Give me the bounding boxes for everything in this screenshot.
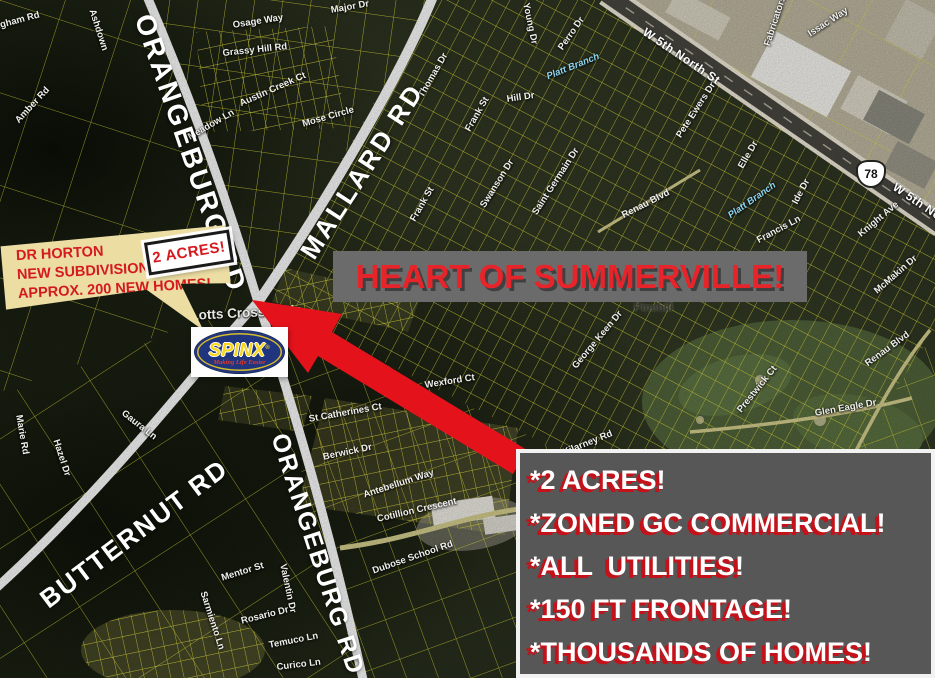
spinx-logo-name: SPINX® [209,339,270,359]
spinx-logo-card: SPINX® Making Life Easier [191,327,288,377]
feature-frontage: *150 FT FRONTAGE! [530,588,931,631]
spinx-logo-oval: SPINX® Making Life Easier [194,330,285,374]
feature-homes: *THOUSANDS OF HOMES! [530,631,931,674]
spinx-logo-tagline: Making Life Easier [213,359,265,366]
headline-banner: HEART OF SUMMERVILLE! [333,251,807,302]
flyer-map: Bingham RdOsage WayGrassy Hill RdAustin … [0,0,935,678]
feature-zoning: *ZONED GC COMMERCIAL! [530,502,931,545]
shield-number: 78 [864,167,877,181]
features-box: *2 ACRES! *ZONED GC COMMERCIAL! *ALL UTI… [516,449,935,678]
feature-acres: *2 ACRES! [530,459,931,502]
registered-mark: ® [265,345,270,351]
acreage-tag-text: 2 ACRES! [151,238,226,266]
headline-text: HEART OF SUMMERVILLE! [356,258,784,296]
feature-utilities: *ALL UTILITIES! [530,545,931,588]
